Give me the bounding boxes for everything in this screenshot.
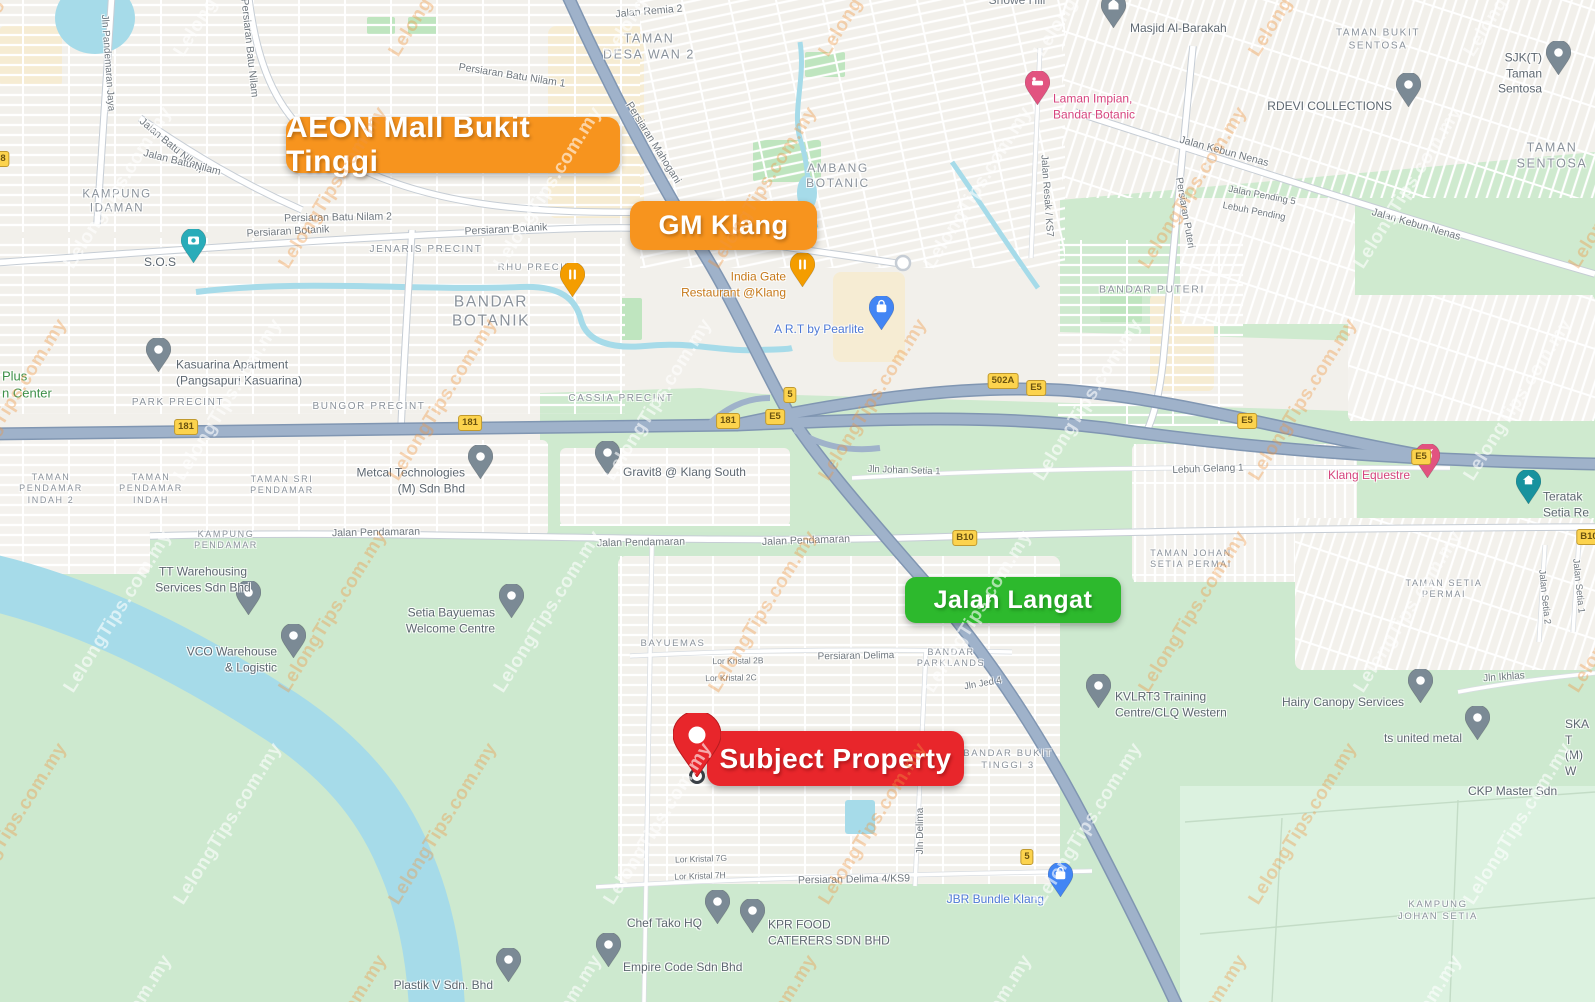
map-pin-mosque[interactable] (1101, 0, 1126, 33)
green-zone-kampung (1180, 786, 1595, 1002)
map-pin[interactable] (1408, 669, 1433, 708)
map-pin[interactable] (281, 624, 306, 663)
map-pin-camera[interactable] (181, 229, 206, 268)
map-pin[interactable] (1086, 674, 1111, 713)
poi-label[interactable]: Laman Impian, Bandar Botanic (1053, 91, 1135, 122)
map-screenshot: TAMAN DESA WAN 2AMBANG BOTANICKAMPUNG ID… (0, 0, 1595, 1002)
map-pin[interactable] (740, 899, 765, 938)
map-canvas[interactable] (0, 0, 1595, 1002)
annotation-subject-property: Subject Property (707, 731, 964, 786)
poi-label[interactable]: Klang Equestre (1328, 468, 1410, 484)
map-pin[interactable] (146, 338, 171, 377)
poi-label[interactable]: S.O.S (144, 255, 176, 271)
poi-label[interactable]: KPR FOOD CATERERS SDN BHD (768, 917, 890, 948)
map-pin[interactable] (595, 441, 620, 480)
map-pin[interactable] (1465, 706, 1490, 745)
annotation-gm-klang: GM Klang (630, 201, 817, 250)
poi-label[interactable]: A R.T by Pearlite (774, 322, 864, 338)
poi-label[interactable]: Hairy Canopy Services (1282, 695, 1404, 711)
poi-label[interactable]: Masjid Al-Barakah (1130, 21, 1227, 37)
poi-label[interactable]: Gravit8 @ Klang South (623, 465, 746, 481)
map-pin[interactable] (705, 890, 730, 929)
map-pin-bed[interactable] (1025, 71, 1050, 110)
map-pin-fork[interactable] (560, 263, 585, 302)
map-pin-horse[interactable] (1415, 444, 1440, 483)
poi-label[interactable]: India Gate Restaurant @Klang (681, 269, 786, 300)
subject-property-pin (673, 713, 721, 777)
poi-label[interactable]: VCO Warehouse & Logistic (187, 644, 277, 675)
map-pin-bag[interactable] (1048, 863, 1073, 902)
poi-label[interactable]: Teratak Setia Re (1543, 489, 1589, 520)
poi-label[interactable]: Chef Tako HQ (627, 916, 702, 932)
poi-label[interactable]: Setia Bayuemas Welcome Centre (406, 605, 495, 636)
map-pin-fork[interactable] (790, 253, 815, 292)
map-pin-home[interactable] (1516, 470, 1541, 509)
map-pin[interactable] (1396, 73, 1421, 112)
annotation-jalan-langat: Jalan Langat (905, 577, 1121, 623)
poi-label[interactable]: KVLRT3 Training Centre/CLQ Western (1115, 689, 1227, 720)
poi-label[interactable]: Kasuarina Apartment (Pangsapuri Kasuarin… (176, 357, 302, 388)
map-pin[interactable] (596, 933, 621, 972)
annotation-aeon-mall: AEON Mall Bukit Tinggi (286, 117, 620, 173)
map-pin[interactable] (1546, 41, 1571, 80)
map-pin[interactable] (499, 584, 524, 623)
poi-label[interactable]: RDEVI COLLECTIONS (1267, 99, 1392, 115)
poi-label[interactable]: JBR Bundle Klang (947, 892, 1044, 908)
poi-label[interactable]: Empire Code Sdn Bhd (623, 960, 742, 976)
poi-label[interactable]: TT Warehousing Services Sdn Bhd (155, 564, 250, 595)
map-pin[interactable] (496, 948, 521, 987)
poi-label[interactable]: ts united metal (1384, 731, 1462, 747)
map-pin-bag[interactable] (869, 296, 894, 335)
map-pin[interactable] (468, 445, 493, 484)
poi-label[interactable]: Metcal Technologies (M) Sdn Bhd (356, 465, 465, 496)
poi-label[interactable]: Plastik V Sdn. Bhd (394, 978, 493, 994)
poi-label[interactable]: SJK(T) Taman Sentosa (1489, 51, 1542, 98)
